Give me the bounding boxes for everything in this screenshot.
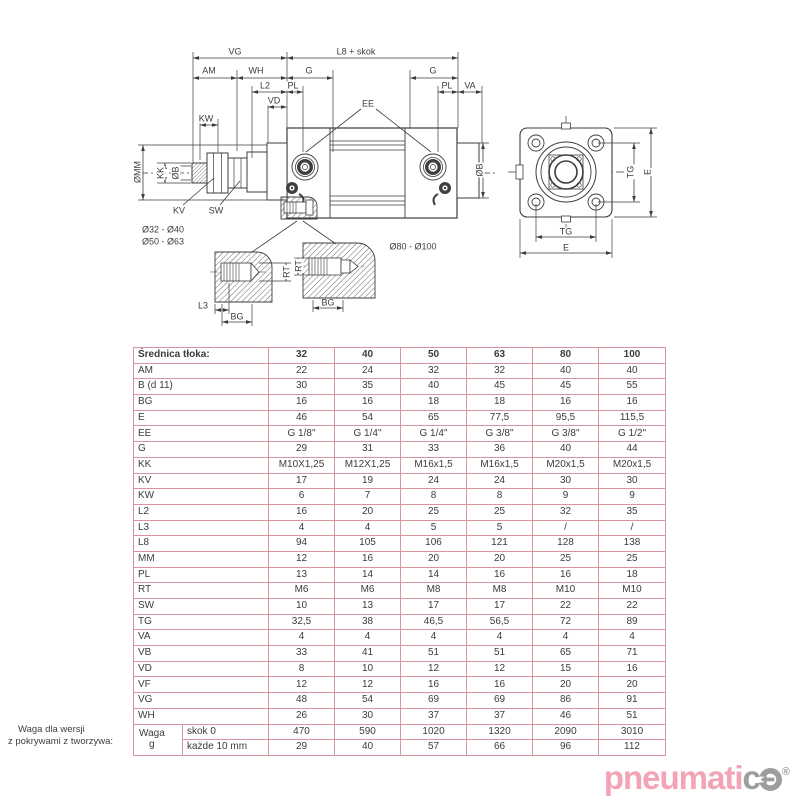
dim-label-pl: PL — [440, 82, 453, 91]
weight-value: 29 — [269, 740, 335, 756]
spec-value: 29 — [269, 442, 335, 458]
spec-label: WH — [134, 708, 269, 724]
spec-value: 65 — [533, 646, 599, 662]
spec-value: 72 — [533, 614, 599, 630]
logo-text-gray: c — [743, 759, 760, 796]
spec-value: 24 — [335, 363, 401, 379]
dim-label-e: E — [644, 168, 653, 176]
spec-value: 56,5 — [467, 614, 533, 630]
spec-value: 46,5 — [401, 614, 467, 630]
spec-value: M6 — [335, 583, 401, 599]
dim-label-g: G — [304, 67, 313, 76]
spec-value: 45 — [467, 379, 533, 395]
spec-label: E — [134, 410, 269, 426]
spec-value: 20 — [533, 677, 599, 693]
dim-label-bg: BG — [229, 313, 244, 322]
weight-label: Waga — [139, 729, 180, 740]
spec-value: 40 — [599, 363, 666, 379]
spec-value: 65 — [401, 410, 467, 426]
spec-label: VD — [134, 661, 269, 677]
spec-value: 115,5 — [599, 410, 666, 426]
spec-value: G 1/8" — [269, 426, 335, 442]
table-header: Średnica tłoka:3240506380100 — [134, 348, 666, 364]
spec-value: 17 — [269, 473, 335, 489]
spec-value: 16 — [401, 677, 467, 693]
spec-value: 8 — [467, 489, 533, 505]
spec-value: 36 — [467, 442, 533, 458]
spec-label: SW — [134, 599, 269, 615]
header-diameter-32: 32 — [269, 348, 335, 364]
spec-value: M10X1,25 — [269, 457, 335, 473]
spec-label: L8 — [134, 536, 269, 552]
spec-label: B (d 11) — [134, 379, 269, 395]
weight-value: 1020 — [401, 724, 467, 740]
spec-value: 12 — [269, 677, 335, 693]
spec-row-kk: KKM10X1,25M12X1,25M16x1,5M16x1,5M20x1,5M… — [134, 457, 666, 473]
spec-value: 16 — [533, 567, 599, 583]
spec-value: 16 — [599, 661, 666, 677]
spec-value: 51 — [467, 646, 533, 662]
dim-label-tg: TG — [559, 228, 574, 237]
spec-row-l2: L2162025253235 — [134, 504, 666, 520]
spec-value: 35 — [335, 379, 401, 395]
spec-value: 18 — [599, 567, 666, 583]
spec-value: 14 — [401, 567, 467, 583]
spec-value: M6 — [269, 583, 335, 599]
spec-value: 10 — [335, 661, 401, 677]
spec-value: 69 — [467, 693, 533, 709]
dim-label-g: G — [428, 67, 437, 76]
spec-value: 20 — [401, 551, 467, 567]
spec-label: VG — [134, 693, 269, 709]
spec-value: 33 — [269, 646, 335, 662]
spec-value: 54 — [335, 693, 401, 709]
spec-row-e: E46546577,595,5115,5 — [134, 410, 666, 426]
spec-value: 13 — [335, 599, 401, 615]
weight-unit-label: Wagag — [134, 724, 183, 755]
spec-value: 4 — [335, 520, 401, 536]
spec-row-mm: MM121620202525 — [134, 551, 666, 567]
dim-label--b: ØB — [476, 162, 485, 177]
spec-label: L2 — [134, 504, 269, 520]
spec-value: 4 — [335, 630, 401, 646]
spec-value: 30 — [335, 708, 401, 724]
spec-value: 45 — [533, 379, 599, 395]
spec-value: M20x1,5 — [599, 457, 666, 473]
dim-label-vg: VG — [227, 48, 242, 57]
dim-label-l3: L3 — [197, 302, 209, 311]
spec-value: 35 — [599, 504, 666, 520]
spec-value: G 3/8" — [467, 426, 533, 442]
spec-value: 26 — [269, 708, 335, 724]
cylinder-drawing-area: VGL8 + skokAMWHGGL2PLPLVAVDKWEEØMMKKØBKV… — [0, 0, 800, 345]
spec-value: 4 — [599, 630, 666, 646]
spec-row-vf: VF121216162020 — [134, 677, 666, 693]
spec-value: 4 — [269, 520, 335, 536]
table-body: AM222432324040B (d 11)303540454555BG1616… — [134, 363, 666, 755]
spec-row-am: AM222432324040 — [134, 363, 666, 379]
spec-value: 12 — [269, 551, 335, 567]
spec-value: 37 — [401, 708, 467, 724]
spec-value: 32 — [467, 363, 533, 379]
spec-value: 18 — [467, 395, 533, 411]
spec-row-ee: EEG 1/8"G 1/4"G 1/4"G 3/8"G 3/8"G 1/2" — [134, 426, 666, 442]
dim-label-l2: L2 — [259, 82, 271, 91]
dim-label-rt: RT — [295, 259, 304, 273]
dim-label-tg: TG — [627, 165, 636, 180]
dim-label--b: ØB — [172, 165, 181, 180]
spec-label: VF — [134, 677, 269, 693]
weight-value: 2090 — [533, 724, 599, 740]
spec-value: 4 — [533, 630, 599, 646]
spec-value: G 1/2" — [599, 426, 666, 442]
spec-value: 40 — [533, 363, 599, 379]
logo-text-pink: pneumati — [604, 759, 743, 796]
spec-label: VA — [134, 630, 269, 646]
spec-value: G 1/4" — [401, 426, 467, 442]
dim-label-l8-skok: L8 + skok — [336, 48, 377, 57]
spec-value: 7 — [335, 489, 401, 505]
dim-label-ee: EE — [361, 100, 375, 109]
spec-row-kv: KV171924243030 — [134, 473, 666, 489]
spec-value: 9 — [533, 489, 599, 505]
spec-row-rt: RTM6M6M8M8M10M10 — [134, 583, 666, 599]
spec-value: 20 — [467, 551, 533, 567]
header-diameter-label: Średnica tłoka: — [134, 348, 269, 364]
dim-label-rt: RT — [283, 265, 292, 279]
spec-value: 4 — [401, 630, 467, 646]
weight-value: 96 — [533, 740, 599, 756]
footnote-line-2: z pokrywami z tworzywa: — [8, 736, 136, 748]
spec-value: 86 — [533, 693, 599, 709]
spec-value: 25 — [599, 551, 666, 567]
spec-label: MM — [134, 551, 269, 567]
spec-value: 46 — [269, 410, 335, 426]
dim-label-sw: SW — [208, 207, 225, 216]
dim-label-kw: KW — [198, 115, 215, 124]
spec-value: 30 — [269, 379, 335, 395]
dim-label-vd: VD — [267, 97, 282, 106]
dim-label-e: E — [562, 244, 570, 253]
spec-value: 128 — [533, 536, 599, 552]
dim-label-kv: KV — [172, 207, 186, 216]
spec-value: 32,5 — [269, 614, 335, 630]
spec-label: BG — [134, 395, 269, 411]
spec-value: 12 — [335, 677, 401, 693]
spec-value: 15 — [533, 661, 599, 677]
spec-row-tg: TG32,53846,556,57289 — [134, 614, 666, 630]
spec-value: 10 — [269, 599, 335, 615]
dim-label--50-63: Ø50 - Ø63 — [141, 238, 185, 247]
weight-value: 3010 — [599, 724, 666, 740]
spec-value: 91 — [599, 693, 666, 709]
spec-row-bg: BG161618181616 — [134, 395, 666, 411]
weight-value: 57 — [401, 740, 467, 756]
registered-mark: ® — [782, 766, 790, 778]
spec-row-kw: KW678899 — [134, 489, 666, 505]
spec-value: 22 — [599, 599, 666, 615]
spec-value: 77,5 — [467, 410, 533, 426]
spec-value: 44 — [599, 442, 666, 458]
spec-label: VB — [134, 646, 269, 662]
spec-value: 71 — [599, 646, 666, 662]
dim-label-kk: KK — [157, 166, 166, 180]
spec-value: M10 — [533, 583, 599, 599]
weight-value: 1320 — [467, 724, 533, 740]
weight-value: 590 — [335, 724, 401, 740]
spec-value: G 1/4" — [335, 426, 401, 442]
spec-row-g: G293133364044 — [134, 442, 666, 458]
spec-value: 25 — [467, 504, 533, 520]
spec-value: 40 — [401, 379, 467, 395]
spec-value: M20x1,5 — [533, 457, 599, 473]
spec-label: AM — [134, 363, 269, 379]
spec-value: 12 — [401, 661, 467, 677]
spec-value: 18 — [401, 395, 467, 411]
spec-value: 8 — [401, 489, 467, 505]
spec-value: 19 — [335, 473, 401, 489]
dim-label-va: VA — [463, 82, 476, 91]
header-diameter-40: 40 — [335, 348, 401, 364]
spec-value: M16x1,5 — [467, 457, 533, 473]
spec-row-l3: L34455// — [134, 520, 666, 536]
spec-value: 9 — [599, 489, 666, 505]
spec-label: RT — [134, 583, 269, 599]
dimensions-table: Średnica tłoka:3240506380100 AM222432324… — [133, 347, 666, 756]
dim-label-am: AM — [201, 67, 217, 76]
dim-label--mm: ØMM — [134, 160, 143, 184]
spec-value: 105 — [335, 536, 401, 552]
header-diameter-50: 50 — [401, 348, 467, 364]
spec-value: 31 — [335, 442, 401, 458]
spec-value: 20 — [335, 504, 401, 520]
weight-footnote: Waga dla wersji z pokrywami z tworzywa: — [8, 724, 136, 749]
spec-value: 30 — [599, 473, 666, 489]
weight-sub-label: skok 0 — [183, 724, 269, 740]
spec-row-sw: SW101317172222 — [134, 599, 666, 615]
weight-value: 66 — [467, 740, 533, 756]
dim-label--80-100: Ø80 - Ø100 — [388, 243, 437, 252]
spec-value: 22 — [269, 363, 335, 379]
spec-value: 24 — [467, 473, 533, 489]
spec-value: 121 — [467, 536, 533, 552]
dim-label--32-40: Ø32 - Ø40 — [141, 226, 185, 235]
weight-row-1: Wagagskok 04705901020132020903010 — [134, 724, 666, 740]
spec-value: 4 — [467, 630, 533, 646]
spec-label: EE — [134, 426, 269, 442]
spec-value: 106 — [401, 536, 467, 552]
spec-value: 17 — [401, 599, 467, 615]
spec-value: 6 — [269, 489, 335, 505]
dimension-labels-layer: VGL8 + skokAMWHGGL2PLPLVAVDKWEEØMMKKØBKV… — [0, 0, 800, 345]
spec-value: M16x1,5 — [401, 457, 467, 473]
spec-value: 16 — [335, 551, 401, 567]
spec-value: 40 — [533, 442, 599, 458]
spec-value: 94 — [269, 536, 335, 552]
spec-row-wh: WH263037374651 — [134, 708, 666, 724]
spec-value: 32 — [533, 504, 599, 520]
spec-row-pl: PL131414161618 — [134, 567, 666, 583]
spec-value: 138 — [599, 536, 666, 552]
spec-value: 37 — [467, 708, 533, 724]
spec-value: M8 — [401, 583, 467, 599]
spec-value: M12X1,25 — [335, 457, 401, 473]
spec-value: 13 — [269, 567, 335, 583]
spec-value: 16 — [269, 504, 335, 520]
spec-value: M10 — [599, 583, 666, 599]
spec-value: / — [533, 520, 599, 536]
spec-value: 14 — [335, 567, 401, 583]
weight-unit: g — [139, 740, 180, 751]
spec-value: 32 — [401, 363, 467, 379]
pneumatico-logo: pneumatic® — [604, 761, 790, 794]
footnote-line-1: Waga dla wersji — [8, 724, 136, 736]
spec-value: 33 — [401, 442, 467, 458]
spec-value: 46 — [533, 708, 599, 724]
datasheet-page: VGL8 + skokAMWHGGL2PLPLVAVDKWEEØMMKKØBKV… — [0, 0, 800, 800]
spec-row-vd: VD81012121516 — [134, 661, 666, 677]
spec-value: 48 — [269, 693, 335, 709]
weight-sub-label: każde 10 mm — [183, 740, 269, 756]
weight-value: 470 — [269, 724, 335, 740]
spec-value: 54 — [335, 410, 401, 426]
spec-value: 5 — [401, 520, 467, 536]
spec-value: 25 — [533, 551, 599, 567]
spec-value: 69 — [401, 693, 467, 709]
header-diameter-80: 80 — [533, 348, 599, 364]
spec-value: 38 — [335, 614, 401, 630]
spec-value: 12 — [467, 661, 533, 677]
spec-value: 30 — [533, 473, 599, 489]
dim-label-pl: PL — [286, 82, 299, 91]
spec-label: KK — [134, 457, 269, 473]
spec-label: PL — [134, 567, 269, 583]
spec-row-va: VA444444 — [134, 630, 666, 646]
spec-row-vb: VB334151516571 — [134, 646, 666, 662]
spec-value: M8 — [467, 583, 533, 599]
spec-row-vg: VG485469698691 — [134, 693, 666, 709]
spec-value: 24 — [401, 473, 467, 489]
spec-value: 20 — [599, 677, 666, 693]
header-diameter-63: 63 — [467, 348, 533, 364]
weight-value: 40 — [335, 740, 401, 756]
logo-dial-o-icon — [759, 768, 782, 791]
spec-value: 41 — [335, 646, 401, 662]
spec-value: 25 — [401, 504, 467, 520]
spec-value: 51 — [401, 646, 467, 662]
dim-label-wh: WH — [248, 67, 265, 76]
spec-value: 4 — [269, 630, 335, 646]
spec-label: KW — [134, 489, 269, 505]
spec-value: 5 — [467, 520, 533, 536]
spec-label: L3 — [134, 520, 269, 536]
header-row: Średnica tłoka:3240506380100 — [134, 348, 666, 364]
spec-value: / — [599, 520, 666, 536]
spec-value: G 3/8" — [533, 426, 599, 442]
spec-label: TG — [134, 614, 269, 630]
spec-value: 51 — [599, 708, 666, 724]
weight-row-2: każde 10 mm2940576696112 — [134, 740, 666, 756]
spec-value: 55 — [599, 379, 666, 395]
spec-value: 16 — [269, 395, 335, 411]
spec-label: G — [134, 442, 269, 458]
dim-label-bg: BG — [320, 299, 335, 308]
spec-value: 95,5 — [533, 410, 599, 426]
spec-value: 22 — [533, 599, 599, 615]
spec-value: 16 — [533, 395, 599, 411]
spec-label: KV — [134, 473, 269, 489]
spec-value: 89 — [599, 614, 666, 630]
spec-value: 16 — [335, 395, 401, 411]
spec-value: 16 — [599, 395, 666, 411]
spec-value: 17 — [467, 599, 533, 615]
header-diameter-100: 100 — [599, 348, 666, 364]
weight-value: 112 — [599, 740, 666, 756]
spec-row-b-d-11-: B (d 11)303540454555 — [134, 379, 666, 395]
spec-row-l8: L894105106121128138 — [134, 536, 666, 552]
spec-value: 16 — [467, 567, 533, 583]
spec-value: 8 — [269, 661, 335, 677]
dimensions-table-wrap: Średnica tłoka:3240506380100 AM222432324… — [133, 347, 666, 756]
spec-value: 16 — [467, 677, 533, 693]
